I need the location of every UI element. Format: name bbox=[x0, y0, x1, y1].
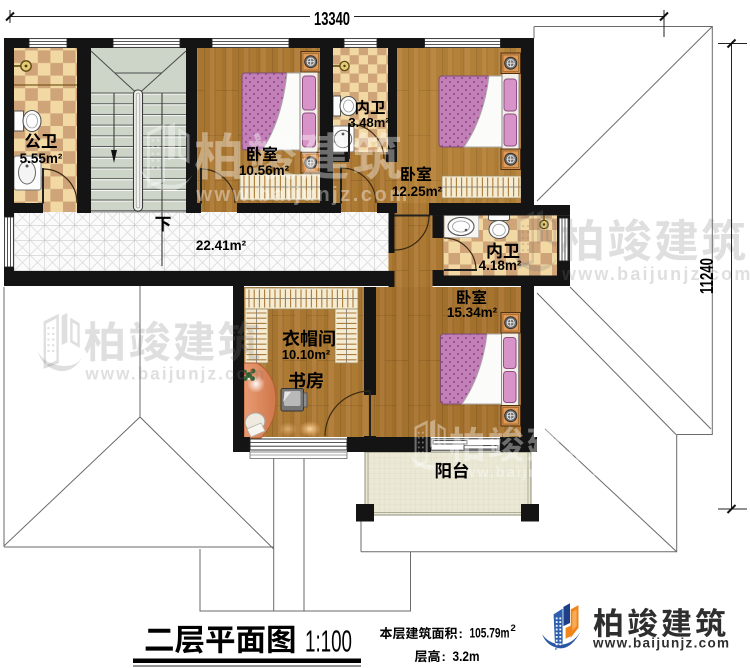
svg-text:2: 2 bbox=[511, 623, 516, 634]
svg-text::: : bbox=[442, 649, 446, 664]
svg-text:10.56m²: 10.56m² bbox=[239, 163, 290, 178]
svg-text:5.55m²: 5.55m² bbox=[20, 151, 63, 166]
svg-text:1:100: 1:100 bbox=[305, 624, 352, 659]
svg-text:15.34m²: 15.34m² bbox=[447, 305, 498, 320]
svg-text::: : bbox=[459, 626, 463, 641]
svg-text:11240: 11240 bbox=[696, 258, 717, 294]
svg-text:www.baijunjz.com: www.baijunjz.com bbox=[592, 636, 729, 651]
svg-text:12.25m²: 12.25m² bbox=[392, 184, 443, 199]
svg-text:105.79m: 105.79m bbox=[470, 625, 510, 641]
svg-text:22.41m²: 22.41m² bbox=[196, 238, 247, 253]
svg-text:3.48m²: 3.48m² bbox=[348, 115, 390, 130]
svg-text:13340: 13340 bbox=[314, 8, 350, 29]
svg-text:4.18m²: 4.18m² bbox=[479, 258, 522, 273]
svg-text:10.10m²: 10.10m² bbox=[282, 347, 331, 362]
svg-text:3.2m: 3.2m bbox=[453, 648, 480, 664]
